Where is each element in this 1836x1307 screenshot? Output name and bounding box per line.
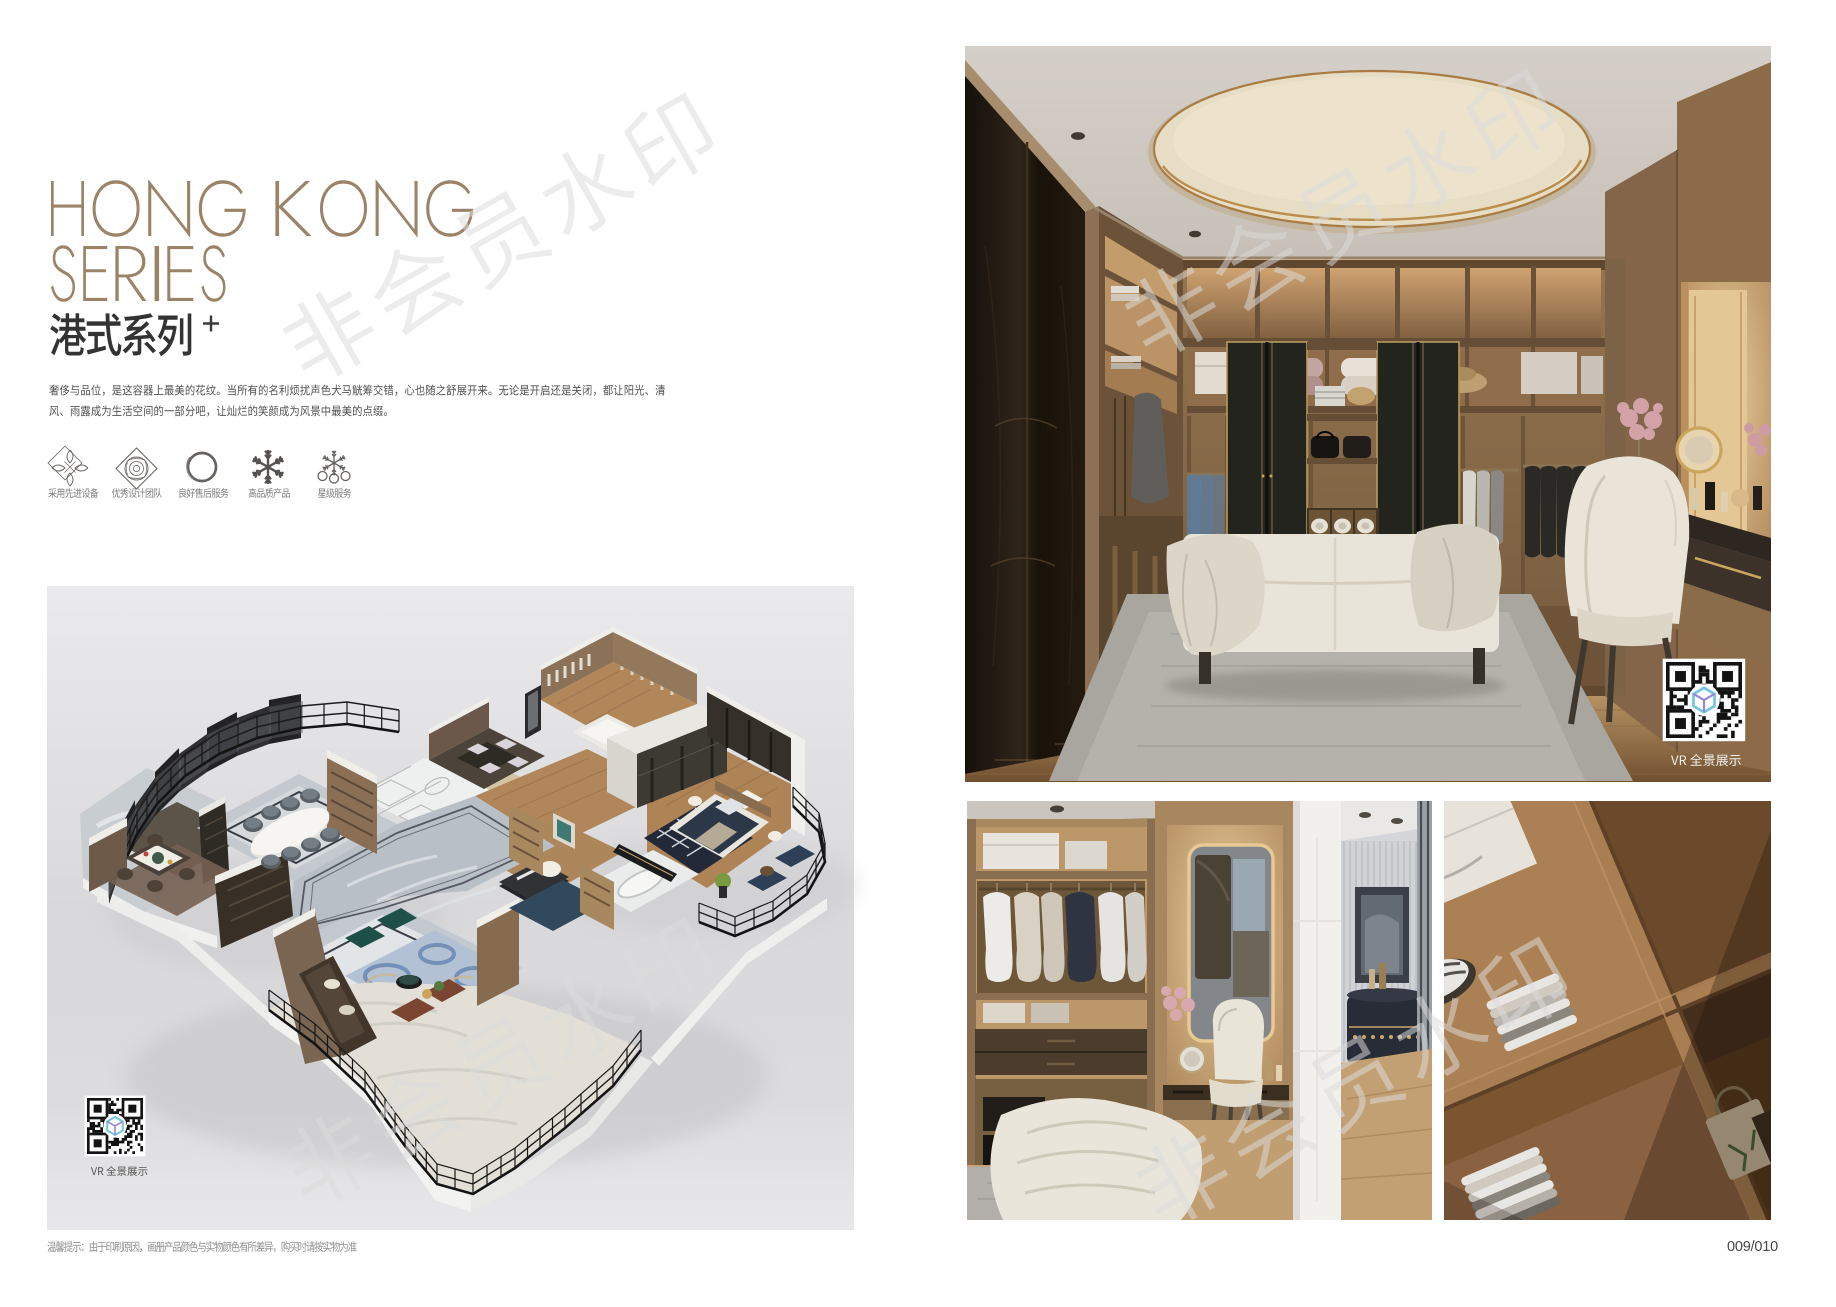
svg-text:009/010: 009/010 <box>1727 1239 1778 1255</box>
